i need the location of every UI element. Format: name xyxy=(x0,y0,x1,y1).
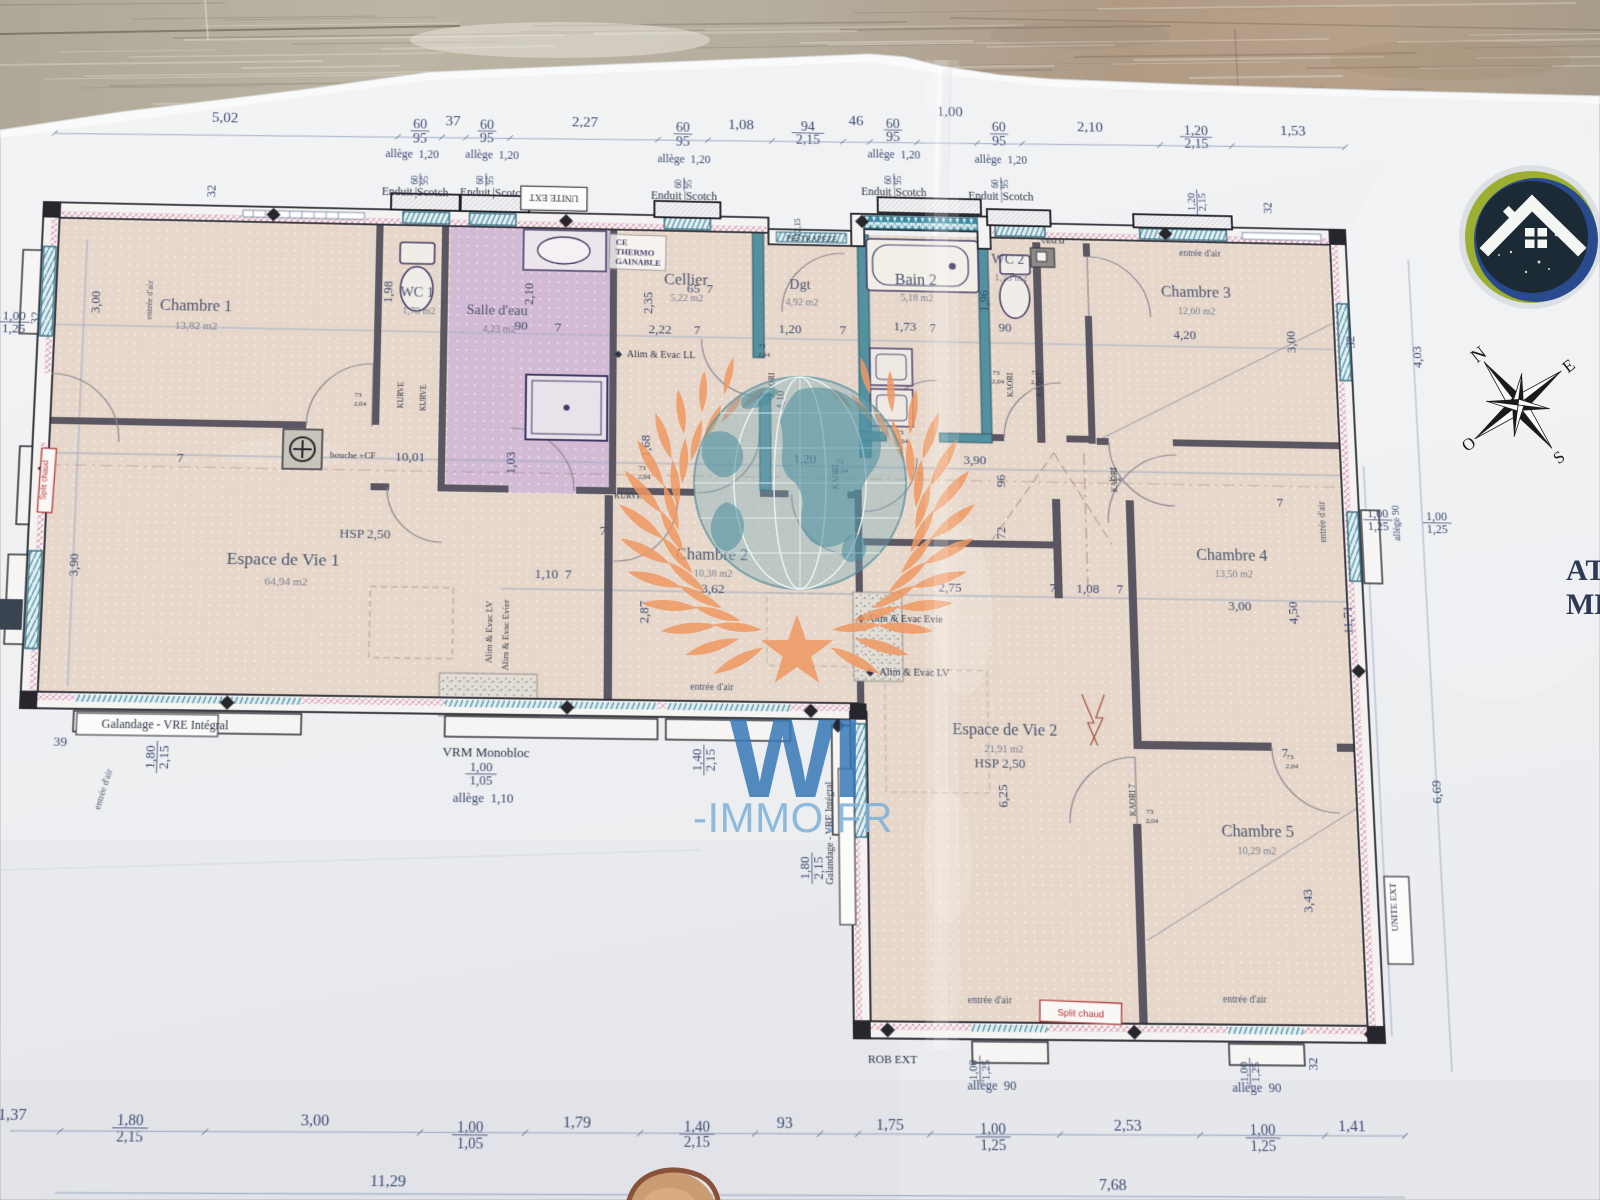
svg-text:-IMMO.FR: -IMMO.FR xyxy=(693,794,893,841)
svg-text:ATT: ATT xyxy=(1566,554,1600,587)
svg-text:S: S xyxy=(1549,447,1568,468)
svg-text:E: E xyxy=(1559,355,1579,376)
svg-text:ME: ME xyxy=(1566,588,1600,621)
svg-text:N: N xyxy=(1467,342,1491,367)
svg-text:O: O xyxy=(1458,433,1479,456)
